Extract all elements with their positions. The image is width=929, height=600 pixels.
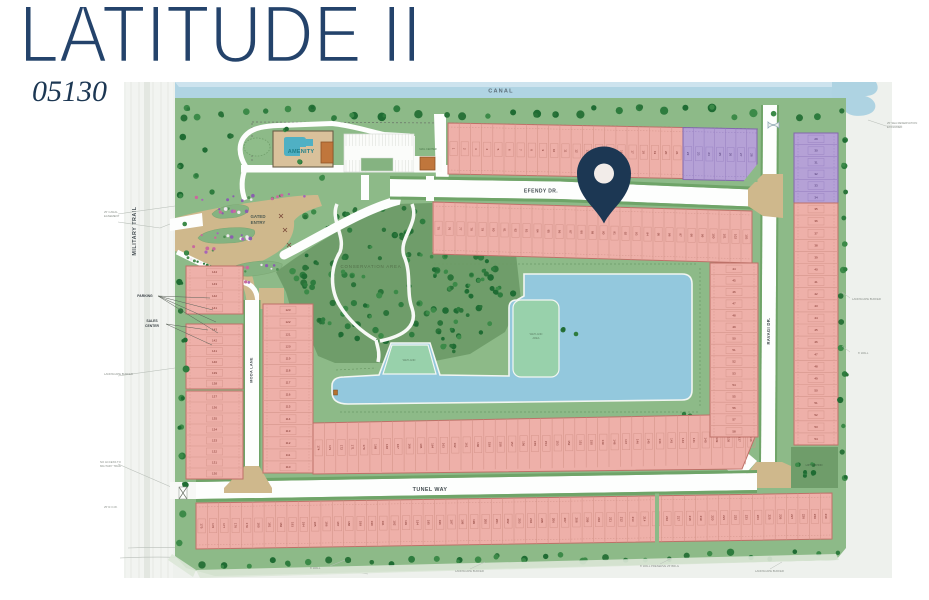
svg-text:161: 161 <box>465 442 469 447</box>
svg-text:144: 144 <box>212 270 217 274</box>
svg-text:174: 174 <box>317 445 321 450</box>
svg-text:49: 49 <box>732 325 736 329</box>
svg-text:26: 26 <box>728 153 732 157</box>
svg-text:31: 31 <box>814 160 818 164</box>
svg-text:6' WALL: 6' WALL <box>858 351 869 355</box>
svg-text:53: 53 <box>732 371 736 375</box>
svg-text:130: 130 <box>212 472 217 476</box>
svg-text:145: 145 <box>647 439 651 444</box>
svg-text:MILITARY TRAIL: MILITARY TRAIL <box>100 464 122 468</box>
svg-text:91: 91 <box>612 231 616 235</box>
svg-text:77: 77 <box>458 227 462 231</box>
svg-text:191: 191 <box>381 521 385 526</box>
svg-text:132: 132 <box>212 450 217 454</box>
svg-text:25' R.O.W.: 25' R.O.W. <box>104 505 118 509</box>
svg-text:MODA LANE: MODA LANE <box>250 357 254 383</box>
svg-text:57: 57 <box>732 418 736 422</box>
svg-text:34: 34 <box>814 195 818 199</box>
svg-text:47: 47 <box>814 352 818 356</box>
svg-text:222: 222 <box>733 515 737 520</box>
svg-text:193: 193 <box>404 520 408 525</box>
svg-text:39: 39 <box>814 256 818 260</box>
svg-text:27: 27 <box>739 153 743 157</box>
svg-text:175: 175 <box>200 523 204 528</box>
svg-text:AMENITY: AMENITY <box>288 149 315 155</box>
svg-text:218: 218 <box>688 516 692 521</box>
svg-text:158: 158 <box>499 442 503 447</box>
svg-text:213: 213 <box>631 517 635 522</box>
svg-text:209: 209 <box>586 517 590 522</box>
svg-text:137: 137 <box>738 437 742 442</box>
svg-text:137: 137 <box>212 395 217 399</box>
svg-text:MILITARY TRAIL: MILITARY TRAIL <box>132 206 138 255</box>
svg-text:165: 165 <box>419 443 423 448</box>
svg-text:192: 192 <box>393 520 397 525</box>
svg-text:48: 48 <box>732 313 736 317</box>
svg-text:118: 118 <box>286 369 291 373</box>
svg-text:226: 226 <box>779 514 783 519</box>
svg-text:95: 95 <box>656 233 660 237</box>
svg-text:98: 98 <box>689 234 693 238</box>
svg-text:44: 44 <box>732 267 736 271</box>
svg-text:204: 204 <box>529 518 533 523</box>
svg-text:184: 184 <box>302 522 306 527</box>
svg-text:141: 141 <box>692 438 696 443</box>
svg-text:51: 51 <box>814 401 818 405</box>
svg-text:149: 149 <box>601 440 605 445</box>
svg-text:48: 48 <box>814 365 818 369</box>
svg-text:50: 50 <box>814 389 818 393</box>
svg-text:198: 198 <box>461 519 465 524</box>
svg-text:49: 49 <box>814 377 818 381</box>
svg-text:GATED: GATED <box>250 214 265 219</box>
svg-text:82: 82 <box>513 229 517 233</box>
svg-text:228: 228 <box>801 514 805 519</box>
svg-text:88: 88 <box>579 231 583 235</box>
svg-text:180: 180 <box>256 522 260 527</box>
svg-text:96: 96 <box>667 233 671 237</box>
svg-text:153: 153 <box>556 440 560 445</box>
svg-text:LIFT STATION: LIFT STATION <box>806 463 823 467</box>
svg-text:139: 139 <box>212 371 217 375</box>
svg-text:117: 117 <box>286 381 291 385</box>
svg-text:AREA: AREA <box>532 336 539 340</box>
svg-text:WETLAND: WETLAND <box>403 358 416 362</box>
svg-text:110: 110 <box>286 465 291 469</box>
svg-text:140: 140 <box>212 360 217 364</box>
svg-text:EASEMENT: EASEMENT <box>104 214 120 218</box>
svg-text:LANDSCAPE BUFFER: LANDSCAPE BUFFER <box>755 569 784 573</box>
svg-text:80: 80 <box>491 228 495 232</box>
svg-text:185: 185 <box>313 522 317 527</box>
svg-text:164: 164 <box>430 443 434 448</box>
svg-text:171: 171 <box>351 445 355 450</box>
svg-text:214: 214 <box>642 516 646 521</box>
svg-text:131: 131 <box>212 461 217 465</box>
svg-text:MAIL CENTER: MAIL CENTER <box>419 147 436 151</box>
svg-text:42: 42 <box>814 292 818 296</box>
svg-text:139: 139 <box>715 437 719 442</box>
svg-text:45: 45 <box>814 328 818 332</box>
svg-text:119: 119 <box>286 356 291 360</box>
svg-text:43: 43 <box>814 304 818 308</box>
svg-text:181: 181 <box>268 522 272 527</box>
svg-text:PARKING: PARKING <box>137 294 153 298</box>
svg-text:112: 112 <box>286 441 291 445</box>
svg-text:206: 206 <box>552 518 556 523</box>
svg-text:37: 37 <box>814 231 818 235</box>
svg-text:75: 75 <box>436 227 440 231</box>
svg-text:178: 178 <box>234 523 238 528</box>
svg-text:169: 169 <box>373 444 377 449</box>
svg-text:152: 152 <box>567 440 571 445</box>
svg-text:230: 230 <box>824 514 828 519</box>
svg-text:11: 11 <box>563 149 567 152</box>
svg-text:142: 142 <box>681 438 685 443</box>
svg-text:56: 56 <box>732 406 736 410</box>
svg-text:160: 160 <box>476 442 480 447</box>
svg-text:163: 163 <box>442 443 446 448</box>
svg-text:146: 146 <box>635 439 639 444</box>
svg-text:207: 207 <box>563 518 567 523</box>
svg-text:224: 224 <box>756 515 760 520</box>
svg-text:201: 201 <box>495 519 499 524</box>
svg-text:47: 47 <box>732 302 736 306</box>
svg-text:17: 17 <box>630 150 634 154</box>
svg-text:28: 28 <box>750 153 754 157</box>
svg-text:116: 116 <box>286 393 291 397</box>
svg-text:143: 143 <box>212 282 217 286</box>
svg-text:168: 168 <box>385 444 389 449</box>
svg-text:200: 200 <box>483 519 487 524</box>
svg-text:138: 138 <box>212 382 217 386</box>
svg-text:114: 114 <box>286 417 291 421</box>
svg-text:148: 148 <box>613 439 617 444</box>
svg-text:229: 229 <box>813 514 817 519</box>
svg-text:170: 170 <box>362 444 366 449</box>
svg-text:179: 179 <box>245 523 249 528</box>
svg-text:54: 54 <box>732 383 736 387</box>
svg-text:141: 141 <box>212 349 217 353</box>
svg-text:18: 18 <box>642 151 646 155</box>
svg-text:142: 142 <box>212 338 217 342</box>
svg-text:166: 166 <box>408 443 412 448</box>
svg-text:58: 58 <box>732 429 736 433</box>
svg-text:210: 210 <box>597 517 601 522</box>
svg-text:156: 156 <box>521 441 525 446</box>
svg-text:220: 220 <box>711 515 715 520</box>
svg-text:183: 183 <box>290 522 294 527</box>
svg-text:196: 196 <box>438 520 442 525</box>
svg-text:78: 78 <box>469 227 473 231</box>
svg-text:83: 83 <box>524 229 528 233</box>
svg-text:55: 55 <box>732 395 736 399</box>
svg-text:177: 177 <box>222 523 226 528</box>
svg-text:208: 208 <box>574 517 578 522</box>
svg-text:154: 154 <box>544 441 548 446</box>
svg-text:25: 25 <box>718 153 722 157</box>
svg-text:LANDSCAPE BUFFER: LANDSCAPE BUFFER <box>104 372 133 376</box>
svg-text:LANDSCAPE BUFFER: LANDSCAPE BUFFER <box>852 297 881 301</box>
svg-text:84: 84 <box>535 229 539 233</box>
svg-text:CONSERVATION AREA: CONSERVATION AREA <box>341 264 402 269</box>
svg-text:121: 121 <box>285 332 290 336</box>
svg-text:143: 143 <box>669 438 673 443</box>
svg-text:46: 46 <box>732 290 736 294</box>
svg-text:135: 135 <box>212 417 217 421</box>
svg-text:44: 44 <box>814 316 818 320</box>
svg-text:94: 94 <box>645 232 649 236</box>
svg-text:151: 151 <box>578 440 582 445</box>
svg-text:EFENDY DR.: EFENDY DR. <box>524 189 558 195</box>
svg-text:35: 35 <box>814 207 818 211</box>
svg-text:33: 33 <box>814 184 818 188</box>
svg-text:WETLAND: WETLAND <box>530 332 543 336</box>
svg-text:162: 162 <box>453 443 457 448</box>
svg-text:92: 92 <box>623 232 627 236</box>
svg-text:86: 86 <box>557 230 561 234</box>
svg-text:79: 79 <box>480 228 484 232</box>
svg-text:223: 223 <box>745 515 749 520</box>
svg-text:41: 41 <box>814 280 818 284</box>
svg-text:123: 123 <box>285 308 290 312</box>
svg-text:225: 225 <box>767 514 771 519</box>
svg-text:173: 173 <box>328 445 332 450</box>
svg-text:38: 38 <box>814 243 818 247</box>
svg-text:144: 144 <box>658 438 662 443</box>
svg-text:24: 24 <box>707 152 711 156</box>
svg-text:51: 51 <box>732 348 736 352</box>
svg-text:46: 46 <box>814 340 818 344</box>
svg-text:87: 87 <box>568 230 572 234</box>
svg-text:147: 147 <box>624 439 628 444</box>
svg-text:RAVAGI DR.: RAVAGI DR. <box>766 317 771 344</box>
svg-text:54: 54 <box>814 437 818 441</box>
svg-text:12: 12 <box>575 149 579 153</box>
svg-text:76: 76 <box>447 227 451 231</box>
svg-text:52: 52 <box>814 413 818 417</box>
svg-text:29: 29 <box>814 137 818 141</box>
svg-text:52: 52 <box>732 360 736 364</box>
svg-text:20: 20 <box>664 151 668 155</box>
svg-text:205: 205 <box>540 518 544 523</box>
svg-text:136: 136 <box>212 406 217 410</box>
svg-text:227: 227 <box>790 514 794 519</box>
svg-text:22: 22 <box>686 152 690 156</box>
svg-text:6' WALL: 6' WALL <box>310 566 321 570</box>
svg-text:122: 122 <box>285 320 290 324</box>
svg-text:199: 199 <box>472 519 476 524</box>
svg-text:85: 85 <box>546 230 550 234</box>
svg-text:45: 45 <box>732 279 736 283</box>
svg-text:CENTER: CENTER <box>145 324 159 328</box>
svg-text:190: 190 <box>370 521 374 526</box>
svg-text:216: 216 <box>665 516 669 521</box>
svg-text:30: 30 <box>814 149 818 153</box>
svg-text:211: 211 <box>608 517 612 522</box>
svg-text:155: 155 <box>533 441 537 446</box>
svg-text:133: 133 <box>212 439 217 443</box>
svg-text:CANAL: CANAL <box>488 89 514 95</box>
svg-text:195: 195 <box>427 520 431 525</box>
svg-text:89: 89 <box>590 231 594 235</box>
svg-text:142: 142 <box>212 294 217 298</box>
svg-text:99: 99 <box>700 234 704 238</box>
svg-text:138: 138 <box>726 437 730 442</box>
svg-text:187: 187 <box>336 521 340 526</box>
svg-text:ENTRY: ENTRY <box>251 220 266 225</box>
svg-text:157: 157 <box>510 441 514 446</box>
svg-text:113: 113 <box>286 429 291 433</box>
svg-text:23: 23 <box>697 152 701 156</box>
svg-text:141: 141 <box>212 306 217 310</box>
svg-text:97: 97 <box>678 233 682 237</box>
svg-text:LANDSCAPE BUFFER: LANDSCAPE BUFFER <box>455 569 484 573</box>
svg-text:SALES: SALES <box>146 319 158 323</box>
svg-text:159: 159 <box>487 442 491 447</box>
svg-text:32: 32 <box>814 172 818 176</box>
svg-text:176: 176 <box>211 523 215 528</box>
svg-text:53: 53 <box>814 425 818 429</box>
svg-text:21: 21 <box>675 151 679 155</box>
svg-text:188: 188 <box>347 521 351 526</box>
svg-text:140: 140 <box>704 437 708 442</box>
svg-text:6' WALL PRESERVE 25' BRLG: 6' WALL PRESERVE 25' BRLG <box>640 564 679 568</box>
svg-text:189: 189 <box>359 521 363 526</box>
svg-text:172: 172 <box>339 445 343 450</box>
svg-text:197: 197 <box>449 519 453 524</box>
svg-text:101: 101 <box>722 234 726 239</box>
svg-text:150: 150 <box>590 440 594 445</box>
svg-text:102: 102 <box>733 234 737 239</box>
svg-text:202: 202 <box>506 519 510 524</box>
svg-text:36: 36 <box>814 219 818 223</box>
svg-text:167: 167 <box>396 444 400 449</box>
svg-text:50: 50 <box>732 337 736 341</box>
svg-text:81: 81 <box>502 228 506 232</box>
svg-text:219: 219 <box>699 516 703 521</box>
svg-text:115: 115 <box>286 405 291 409</box>
svg-text:19: 19 <box>653 151 657 155</box>
svg-text:90: 90 <box>601 231 605 235</box>
svg-text:186: 186 <box>324 521 328 526</box>
svg-text:EXCLUDED: EXCLUDED <box>887 125 902 129</box>
svg-text:203: 203 <box>518 518 522 523</box>
svg-text:194: 194 <box>415 520 419 525</box>
svg-text:TUNEL WAY: TUNEL WAY <box>413 487 448 493</box>
svg-text:134: 134 <box>212 428 217 432</box>
svg-text:103: 103 <box>744 234 748 239</box>
svg-text:120: 120 <box>285 344 290 348</box>
svg-text:182: 182 <box>279 522 283 527</box>
svg-text:221: 221 <box>722 515 726 520</box>
svg-text:93: 93 <box>634 232 638 236</box>
svg-text:111: 111 <box>286 453 291 457</box>
svg-text:212: 212 <box>620 517 624 522</box>
svg-text:10: 10 <box>552 149 556 153</box>
svg-text:217: 217 <box>677 516 681 521</box>
svg-text:100: 100 <box>711 233 715 238</box>
svg-text:40: 40 <box>814 268 818 272</box>
